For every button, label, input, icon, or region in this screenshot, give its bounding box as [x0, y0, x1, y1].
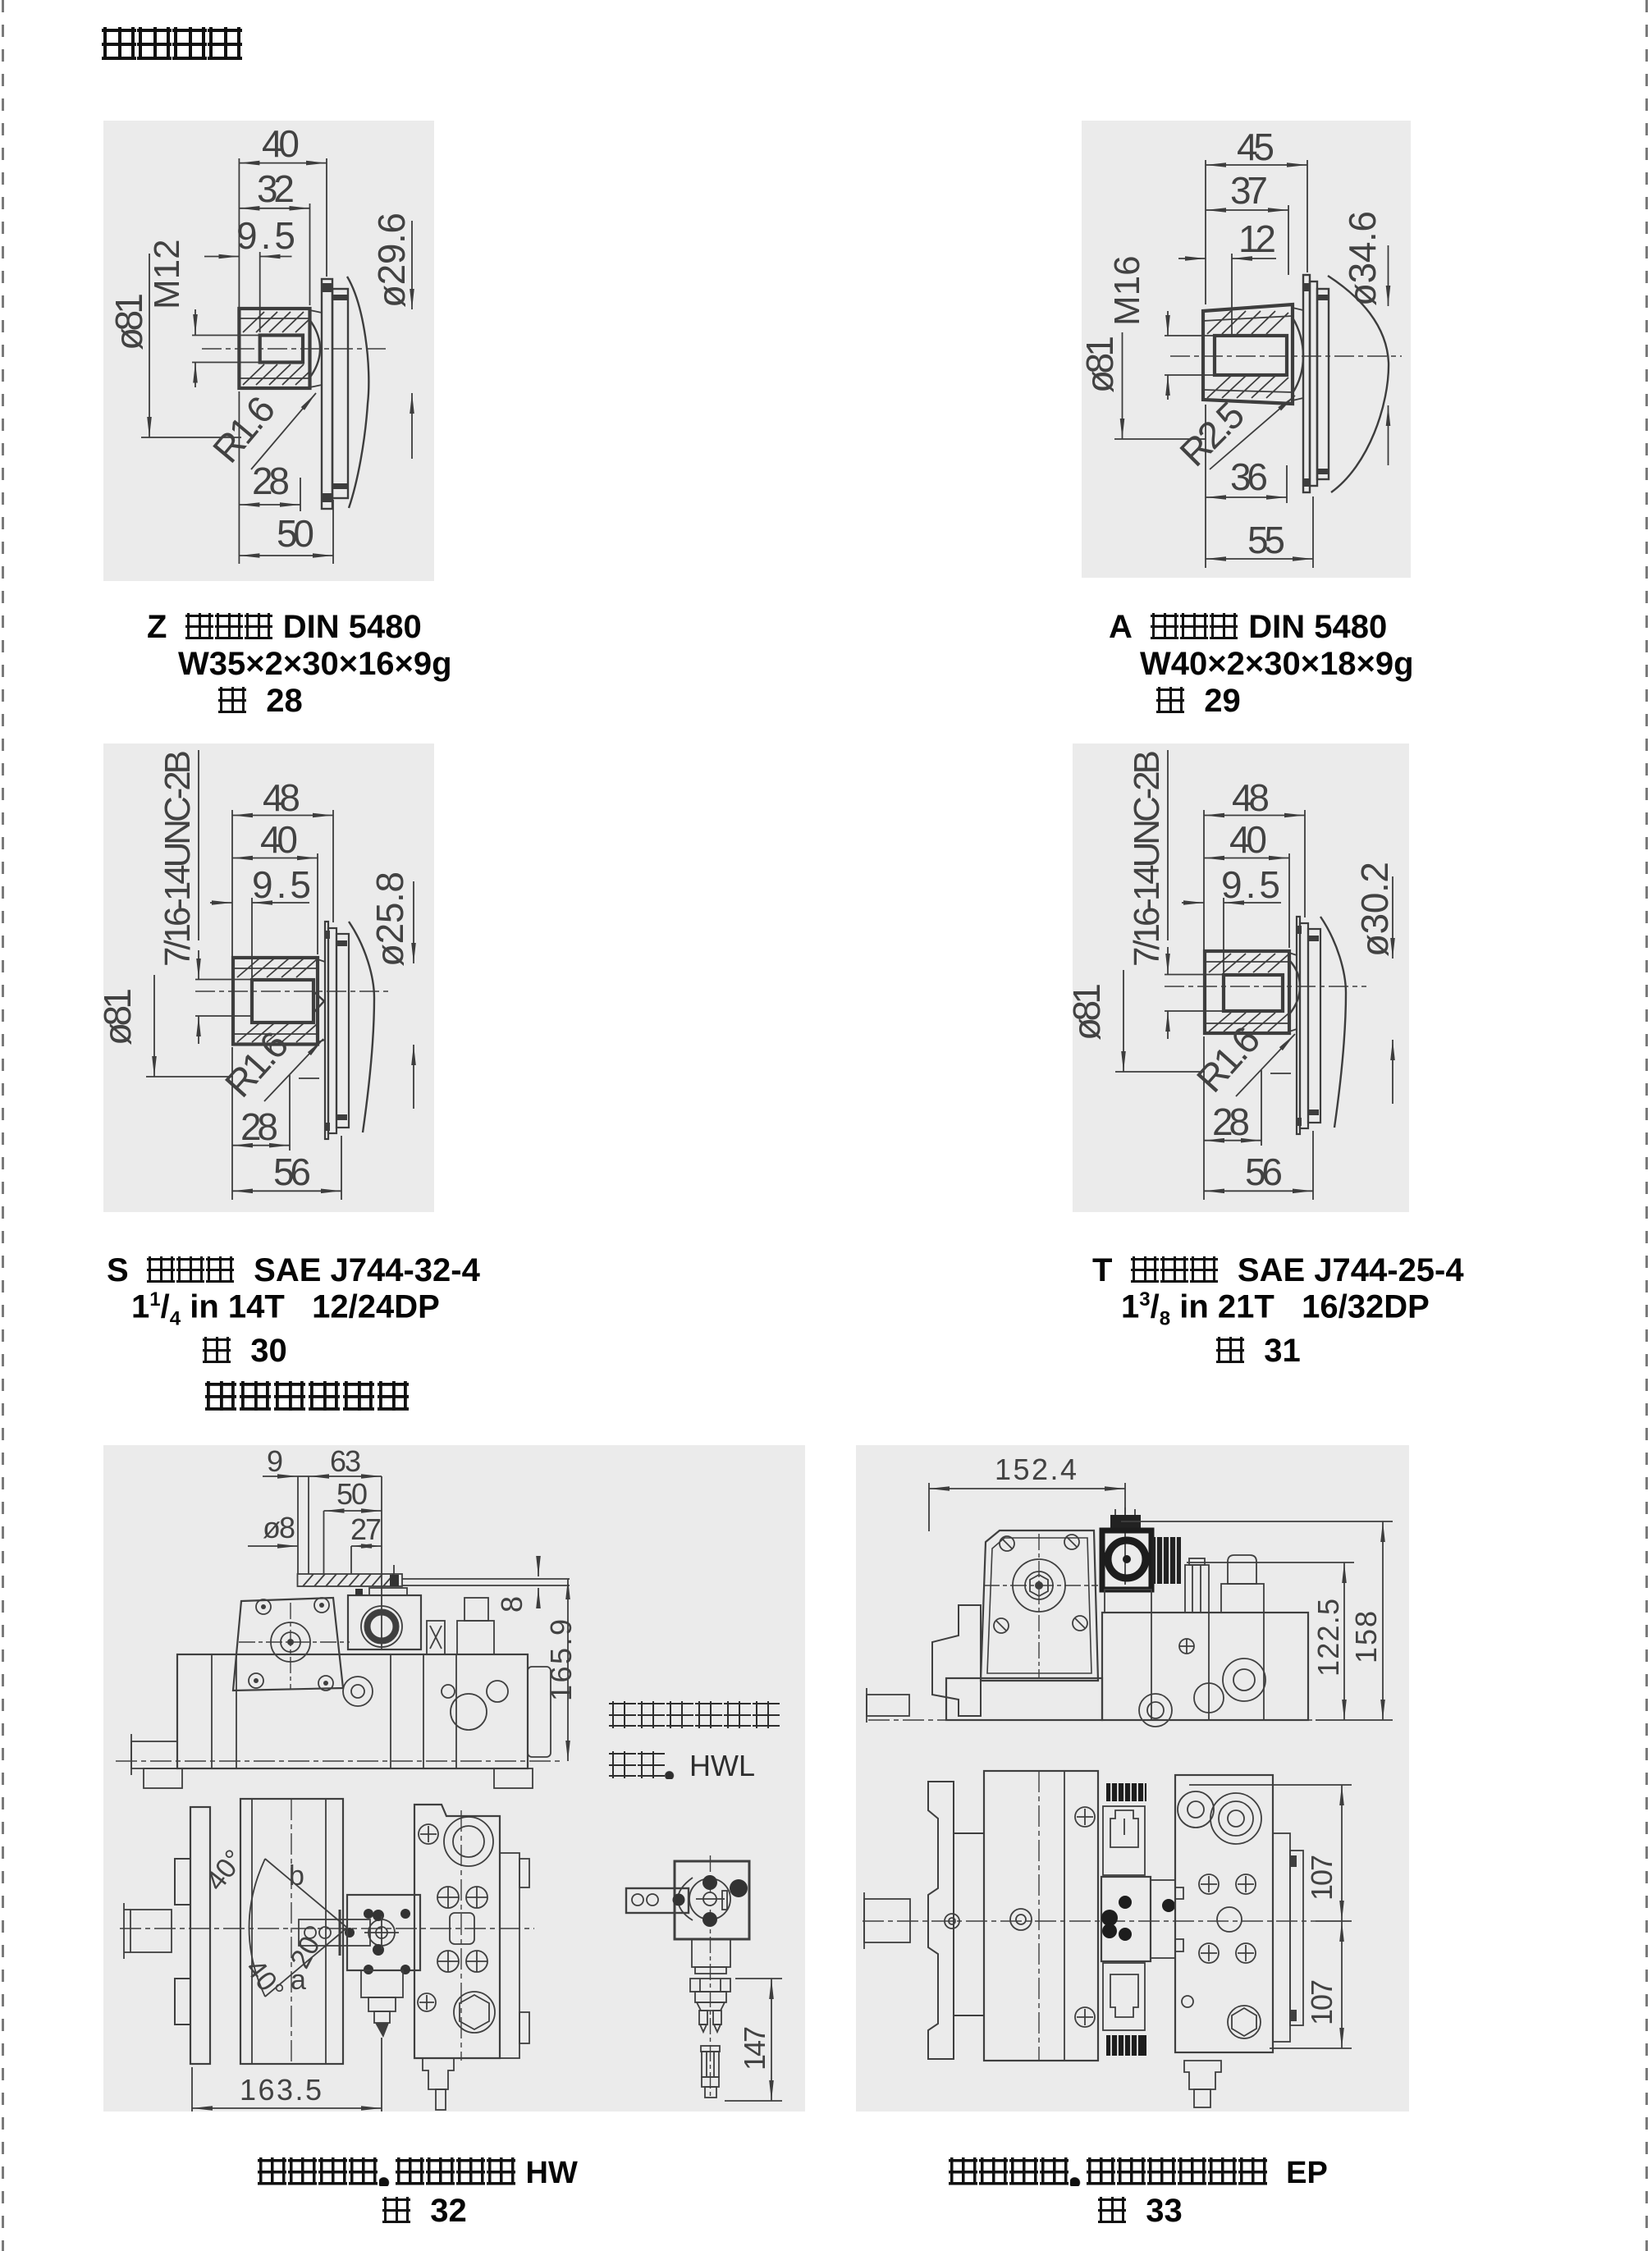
svg-text:55: 55 [1247, 519, 1285, 561]
svg-text:63: 63 [330, 1445, 361, 1478]
svg-text:165.9: 165.9 [544, 1619, 578, 1701]
svg-text:ø81: ø81 [1073, 983, 1108, 1041]
svg-text:56: 56 [1245, 1151, 1283, 1193]
svg-text:28: 28 [1212, 1100, 1250, 1143]
svg-text:107: 107 [1305, 1979, 1339, 2025]
svg-text:48: 48 [1232, 776, 1270, 819]
svg-text:158: 158 [1349, 1611, 1383, 1663]
svg-text:7/16-14UNC-2B: 7/16-14UNC-2B [1127, 750, 1167, 967]
svg-text:9.5: 9.5 [252, 863, 311, 906]
svg-text:147: 147 [738, 2026, 771, 2070]
svg-text:37: 37 [1230, 169, 1268, 212]
svg-text:28: 28 [240, 1105, 278, 1148]
svg-text:28: 28 [252, 460, 290, 502]
svg-text:ø8: ø8 [263, 1511, 295, 1544]
svg-text:9.5: 9.5 [1221, 863, 1280, 906]
svg-text:36: 36 [1230, 455, 1268, 498]
svg-text:M12: M12 [147, 239, 187, 309]
svg-text:40: 40 [1229, 818, 1267, 861]
svg-text:ø81: ø81 [108, 293, 150, 350]
svg-text:32: 32 [257, 167, 295, 210]
svg-text:9.5: 9.5 [236, 214, 295, 257]
svg-text:122.5: 122.5 [1311, 1599, 1345, 1677]
svg-text:50: 50 [277, 512, 314, 555]
svg-text:ø29.6: ø29.6 [370, 213, 413, 308]
svg-text:27: 27 [350, 1512, 382, 1546]
svg-text:107: 107 [1305, 1855, 1339, 1901]
svg-text:48: 48 [263, 776, 300, 819]
svg-text:ø25.8: ø25.8 [368, 872, 411, 967]
svg-text:M16: M16 [1107, 255, 1147, 326]
svg-text:7/16-14UNC-2B: 7/16-14UNC-2B [158, 750, 198, 967]
svg-text:163.5: 163.5 [240, 2073, 322, 2107]
svg-text:45: 45 [1237, 126, 1274, 168]
svg-text:40: 40 [262, 122, 300, 165]
svg-text:b: b [289, 1860, 304, 1892]
svg-text:56: 56 [273, 1151, 311, 1193]
svg-text:40: 40 [260, 818, 298, 861]
svg-text:ø81: ø81 [103, 988, 139, 1045]
svg-text:ø34.6: ø34.6 [1341, 211, 1384, 306]
svg-text:ø81: ø81 [1082, 336, 1121, 393]
svg-text:12: 12 [1238, 217, 1276, 260]
svg-text:152.4: 152.4 [995, 1453, 1077, 1486]
svg-text:ø30.2: ø30.2 [1353, 862, 1396, 957]
svg-text:8: 8 [495, 1596, 529, 1613]
svg-text:9: 9 [267, 1445, 283, 1478]
svg-text:50: 50 [336, 1477, 368, 1511]
